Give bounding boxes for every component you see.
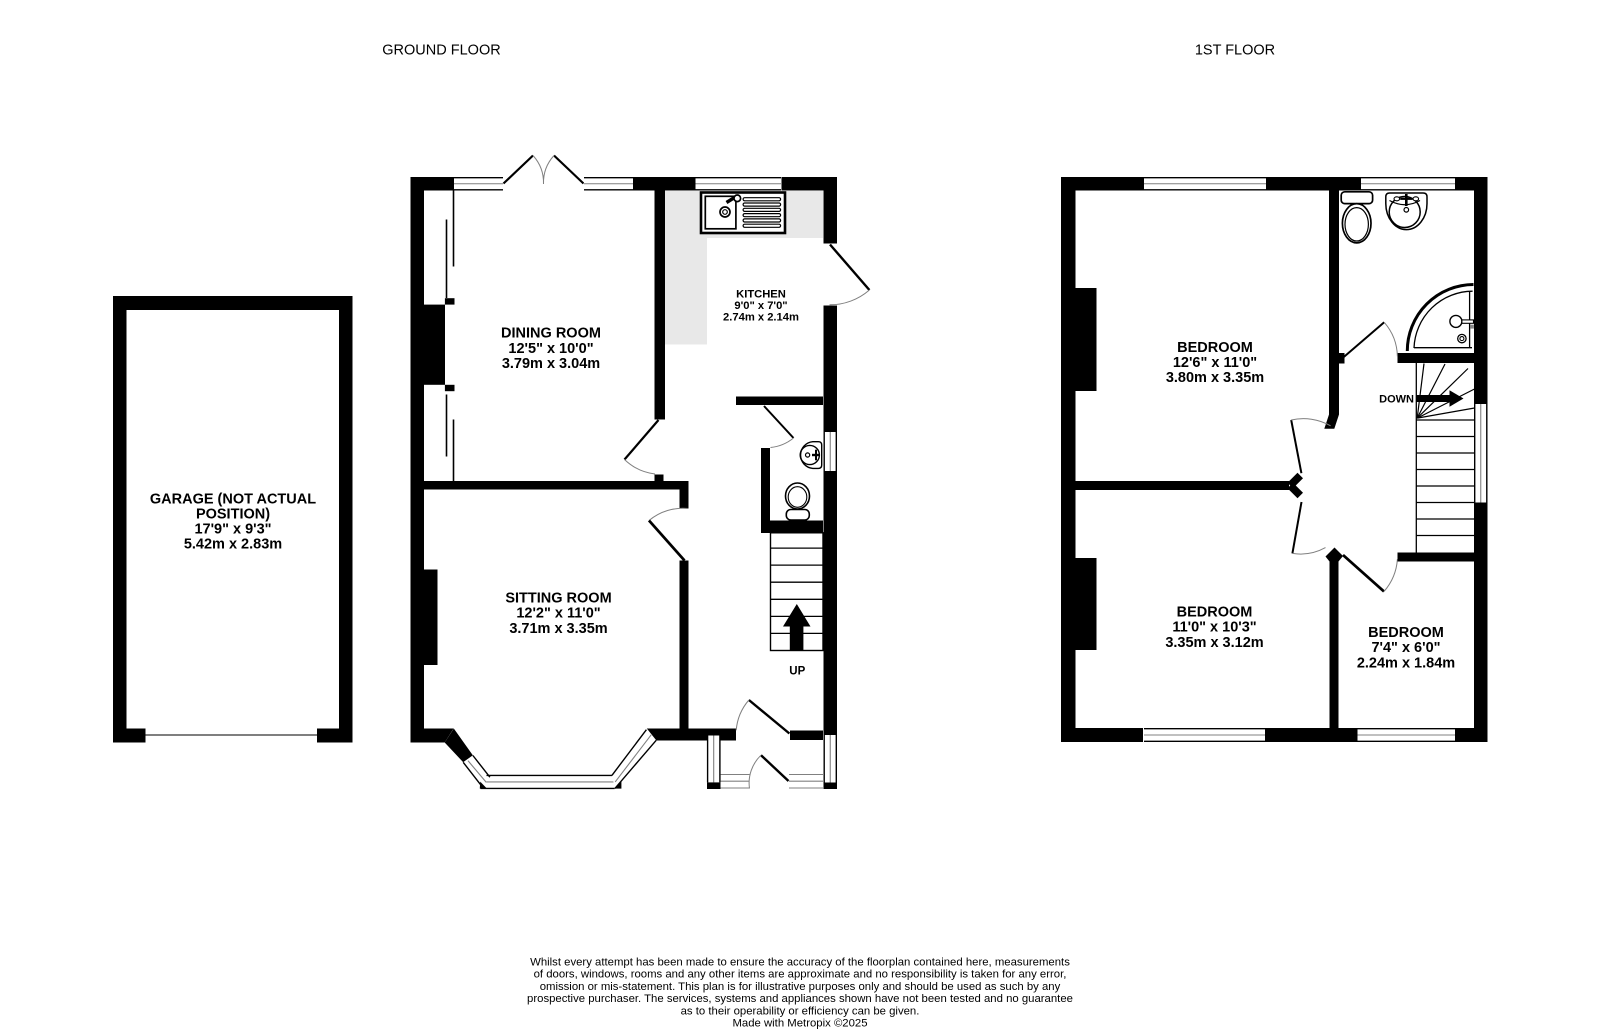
svg-text:BEDROOM: BEDROOM <box>1368 625 1444 641</box>
svg-text:2.24m x 1.84m: 2.24m x 1.84m <box>1357 655 1455 671</box>
svg-text:GROUND FLOOR: GROUND FLOOR <box>382 43 500 59</box>
svg-text:3.71m x 3.35m: 3.71m x 3.35m <box>509 621 607 637</box>
svg-text:POSITION): POSITION) <box>196 507 270 523</box>
svg-text:5.42m x 2.83m: 5.42m x 2.83m <box>184 537 282 553</box>
svg-text:17'9" x 9'3": 17'9" x 9'3" <box>194 522 271 538</box>
svg-text:9'0" x 7'0": 9'0" x 7'0" <box>734 300 787 312</box>
svg-text:DINING ROOM: DINING ROOM <box>501 326 601 342</box>
svg-text:BEDROOM: BEDROOM <box>1177 340 1253 356</box>
svg-text:12'2" x 11'0": 12'2" x 11'0" <box>516 606 600 622</box>
svg-text:11'0" x 10'3": 11'0" x 10'3" <box>1172 620 1256 636</box>
svg-text:omission or mis-statement. Thi: omission or mis-statement. This plan is … <box>540 981 1061 993</box>
svg-text:of doors, windows, rooms and a: of doors, windows, rooms and any other i… <box>534 969 1067 981</box>
svg-text:Made with Metropix ©2025: Made with Metropix ©2025 <box>732 1018 867 1029</box>
svg-text:DOWN: DOWN <box>1379 393 1414 405</box>
svg-text:as to their operability or eff: as to their operability or efficiency ca… <box>681 1005 920 1017</box>
svg-text:12'5" x 10'0": 12'5" x 10'0" <box>508 341 593 357</box>
svg-text:UP: UP <box>789 666 805 678</box>
svg-text:Whilst every attempt has been: Whilst every attempt has been made to en… <box>530 957 1070 969</box>
svg-text:SITTING ROOM: SITTING ROOM <box>505 590 611 606</box>
svg-text:3.79m x 3.04m: 3.79m x 3.04m <box>502 356 600 372</box>
svg-text:12'6" x 11'0": 12'6" x 11'0" <box>1173 355 1257 371</box>
svg-text:1ST FLOOR: 1ST FLOOR <box>1195 43 1275 59</box>
svg-text:prospective purchaser. The ser: prospective purchaser. The services, sys… <box>527 993 1073 1005</box>
svg-text:3.80m x 3.35m: 3.80m x 3.35m <box>1166 370 1264 386</box>
svg-text:KITCHEN: KITCHEN <box>736 289 786 301</box>
svg-text:BEDROOM: BEDROOM <box>1177 604 1253 620</box>
svg-text:GARAGE (NOT ACTUAL: GARAGE (NOT ACTUAL <box>150 491 316 507</box>
svg-text:3.35m x 3.12m: 3.35m x 3.12m <box>1165 635 1263 651</box>
svg-text:2.74m x 2.14m: 2.74m x 2.14m <box>723 312 799 324</box>
svg-text:7'4" x 6'0": 7'4" x 6'0" <box>1371 640 1440 656</box>
